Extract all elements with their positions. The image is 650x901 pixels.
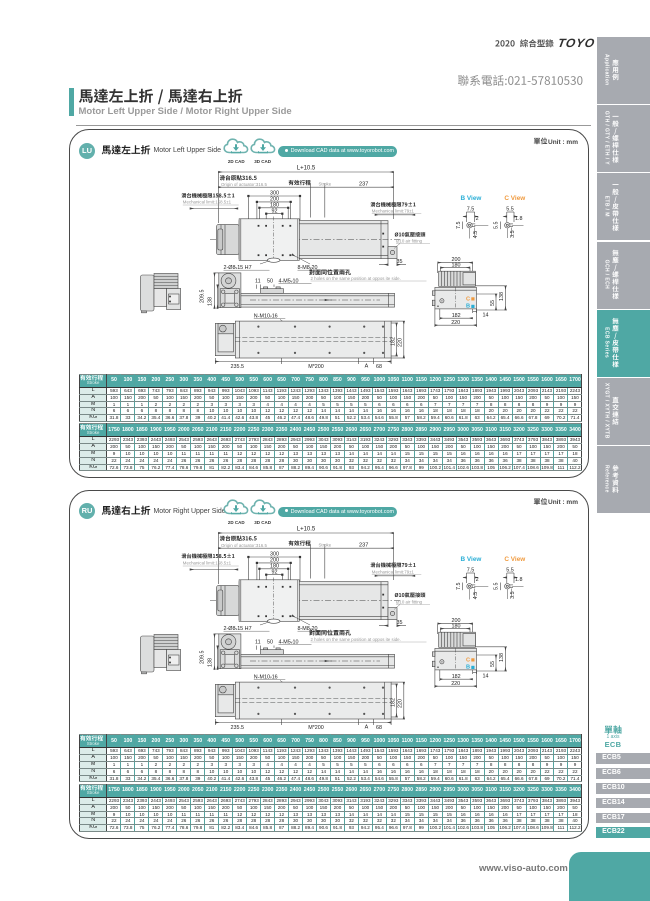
svg-text:14: 14	[482, 313, 488, 319]
svg-text:55: 55	[489, 661, 495, 667]
svg-text:138: 138	[207, 658, 213, 667]
svg-text:Mechanical limit:79±1: Mechanical limit:79±1	[371, 209, 414, 214]
svg-text:11: 11	[255, 639, 261, 645]
svg-text:237: 237	[359, 542, 368, 548]
svg-text:7.5: 7.5	[455, 222, 461, 230]
svg-text:Mechanical limit:158.5±1: Mechanical limit:158.5±1	[182, 560, 231, 565]
svg-text:7.5: 7.5	[466, 207, 474, 213]
svg-text:35: 35	[396, 259, 402, 265]
svg-text:55: 55	[489, 300, 495, 306]
svg-text:209.5: 209.5	[199, 290, 205, 304]
svg-text:11: 11	[255, 279, 261, 285]
svg-text:1.8: 1.8	[515, 577, 523, 583]
svg-text:2 holes on the same position a: 2 holes on the same position at oppos it…	[310, 276, 400, 281]
svg-text:235.5: 235.5	[230, 725, 244, 731]
svg-text:35: 35	[396, 620, 402, 626]
svg-text:68: 68	[376, 364, 382, 370]
svg-text:C View: C View	[504, 195, 525, 202]
svg-text:Mechanical limit:158.5±1: Mechanical limit:158.5±1	[182, 200, 231, 205]
svg-text:182: 182	[451, 674, 460, 680]
svg-text:182: 182	[390, 698, 396, 707]
svg-text:92: 92	[271, 209, 277, 215]
svg-text:138: 138	[207, 297, 213, 306]
svg-text:50: 50	[267, 639, 273, 645]
svg-text:5.5: 5.5	[493, 582, 499, 590]
svg-text:138: 138	[499, 292, 505, 301]
svg-text:68: 68	[376, 725, 382, 731]
svg-text:220: 220	[397, 338, 403, 347]
svg-text:C: C	[466, 657, 470, 663]
svg-text:138: 138	[499, 653, 505, 662]
svg-text:Ø10 air fitting: Ø10 air fitting	[396, 239, 423, 244]
svg-text:209.5: 209.5	[199, 650, 205, 664]
svg-text:92: 92	[271, 569, 277, 575]
svg-text:L+10.5: L+10.5	[296, 166, 315, 172]
svg-text:7.5: 7.5	[455, 582, 461, 590]
svg-text:220: 220	[397, 699, 403, 708]
svg-text:5.5: 5.5	[506, 567, 514, 573]
svg-text:A: A	[364, 724, 368, 730]
svg-text:235.5: 235.5	[230, 364, 244, 370]
svg-text:14: 14	[482, 673, 488, 679]
svg-text:Mechanical limit:79±1: Mechanical limit:79±1	[371, 569, 414, 574]
svg-text:B: B	[466, 664, 470, 670]
svg-text:237: 237	[359, 182, 368, 188]
svg-text:Stroke: Stroke	[318, 542, 331, 547]
svg-text:50: 50	[267, 279, 273, 285]
svg-text:C: C	[466, 297, 470, 303]
svg-text:L+10.5: L+10.5	[296, 526, 315, 532]
svg-text:3.5: 3.5	[510, 231, 516, 239]
svg-text:5.5: 5.5	[506, 207, 514, 213]
svg-text:5.5: 5.5	[493, 222, 499, 230]
svg-text:Stroke: Stroke	[318, 182, 331, 187]
svg-text:182: 182	[390, 337, 396, 346]
svg-text:Origin of actuator:316.5: Origin of actuator:316.5	[221, 543, 267, 548]
svg-text:B: B	[466, 304, 470, 310]
svg-text:C View: C View	[504, 556, 525, 563]
svg-text:Ø10 air fitting: Ø10 air fitting	[396, 599, 423, 604]
svg-text:7.5: 7.5	[466, 567, 474, 573]
svg-text:Origin of actuator:316.5: Origin of actuator:316.5	[221, 182, 267, 187]
svg-text:M*200: M*200	[308, 725, 324, 731]
svg-text:2 holes on the same position a: 2 holes on the same position at oppos it…	[310, 637, 400, 642]
svg-text:3.5: 3.5	[510, 591, 516, 599]
svg-text:A: A	[364, 364, 368, 370]
svg-text:M*200: M*200	[308, 364, 324, 370]
svg-text:B View: B View	[460, 556, 481, 563]
svg-text:220: 220	[451, 681, 460, 687]
svg-text:1.8: 1.8	[515, 217, 523, 223]
svg-text:2: 2	[475, 577, 478, 583]
svg-text:2: 2	[475, 217, 478, 223]
svg-text:B View: B View	[460, 195, 481, 202]
